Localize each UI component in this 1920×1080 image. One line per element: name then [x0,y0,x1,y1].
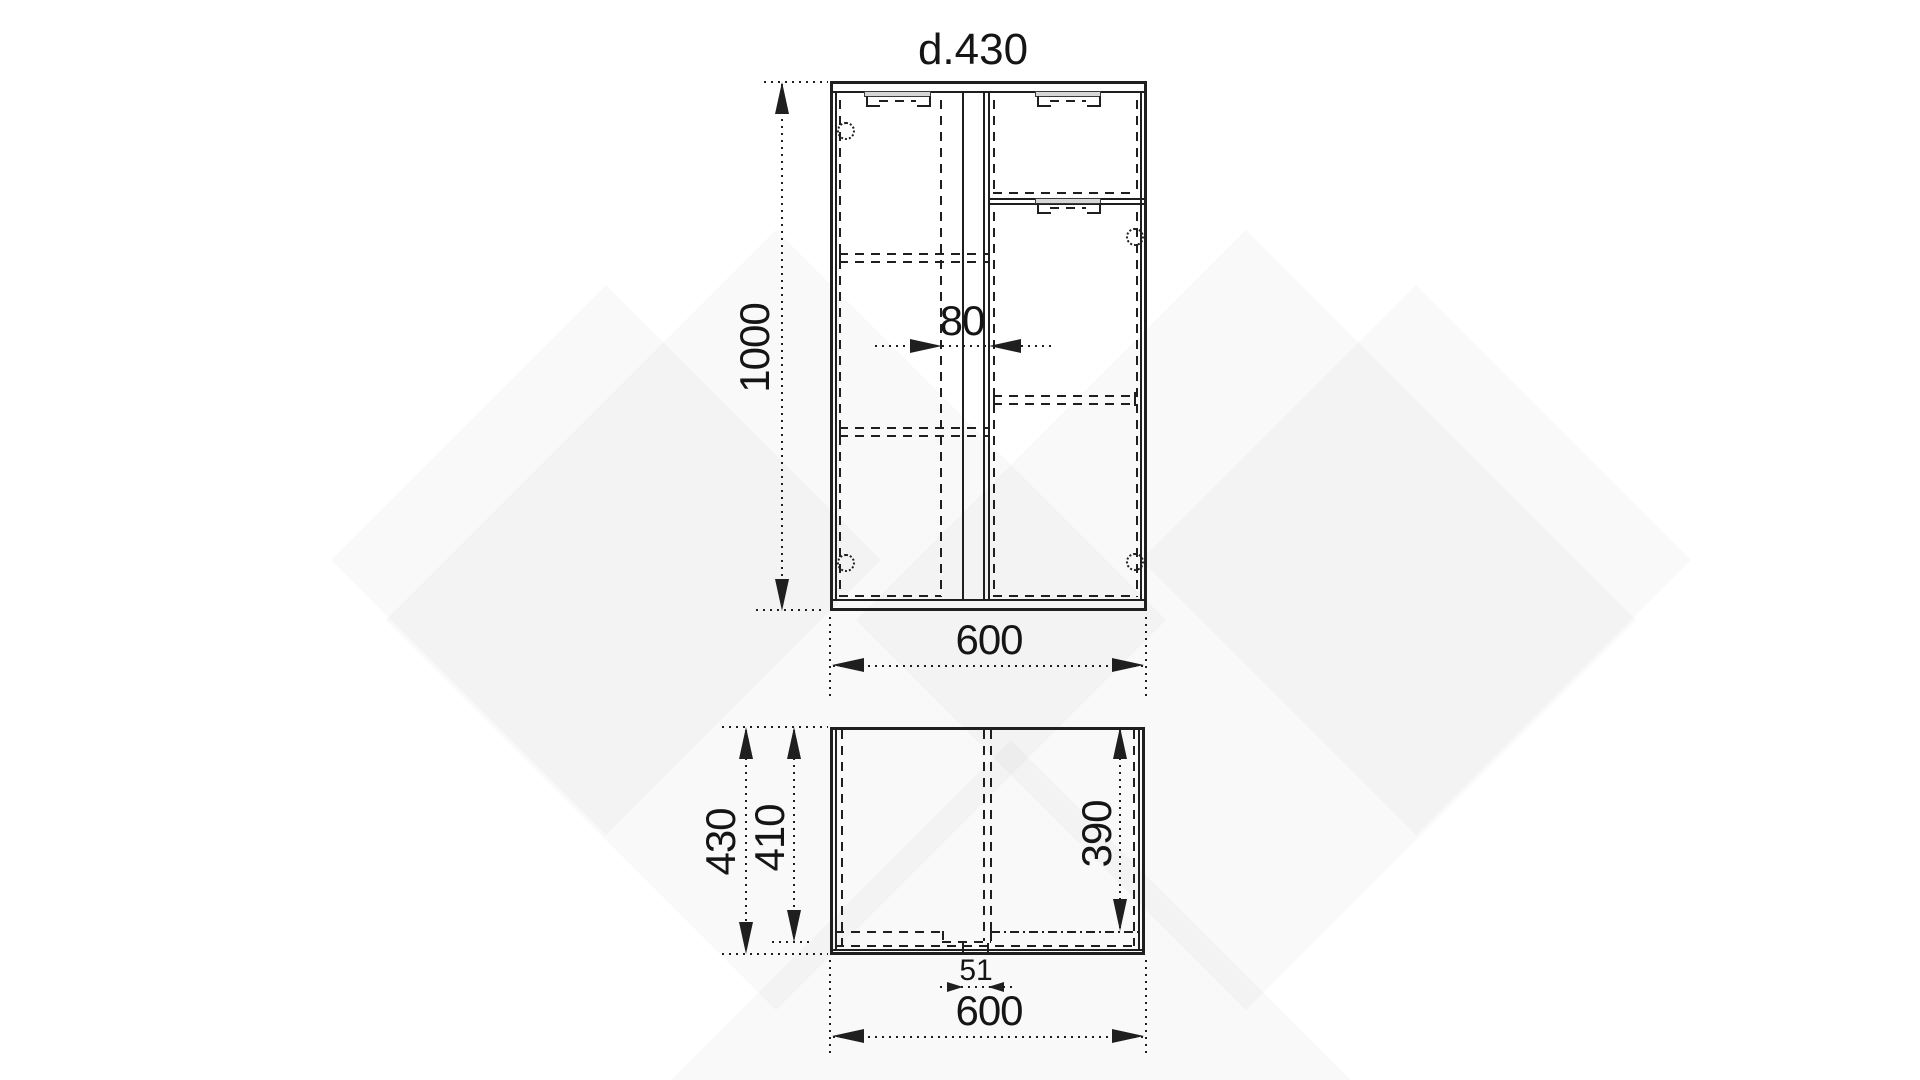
depth-dim-extension [722,726,828,728]
dim-arrow-up [787,727,801,759]
plan-view-dimensions: 430 410 390 51 600 [0,0,1920,1080]
dim-arrow-down [739,922,753,954]
overall-depth-dim-label: 430 [697,808,745,875]
door-depth-dim-label: 390 [1073,800,1121,867]
plan-width-dim-extension [829,960,831,1058]
plan-width-dim-label: 600 [955,987,1022,1035]
dim-arrow-up [1113,727,1127,759]
plan-width-dim-line [833,1036,1143,1038]
inner-depth-dim-extension [772,941,814,943]
depth-dim-extension [722,953,828,955]
dim-arrow-left [832,1029,864,1043]
furniture-technical-drawing: d.430 1000 80 600 [0,0,1920,1080]
inner-depth-dim-label: 410 [746,804,794,871]
dim-arrow-right [1112,1029,1144,1043]
dim-arrow-down [1113,899,1127,931]
plan-width-dim-extension [1145,960,1147,1058]
dim-arrow-down [787,910,801,942]
dim-arrow-up [739,727,753,759]
